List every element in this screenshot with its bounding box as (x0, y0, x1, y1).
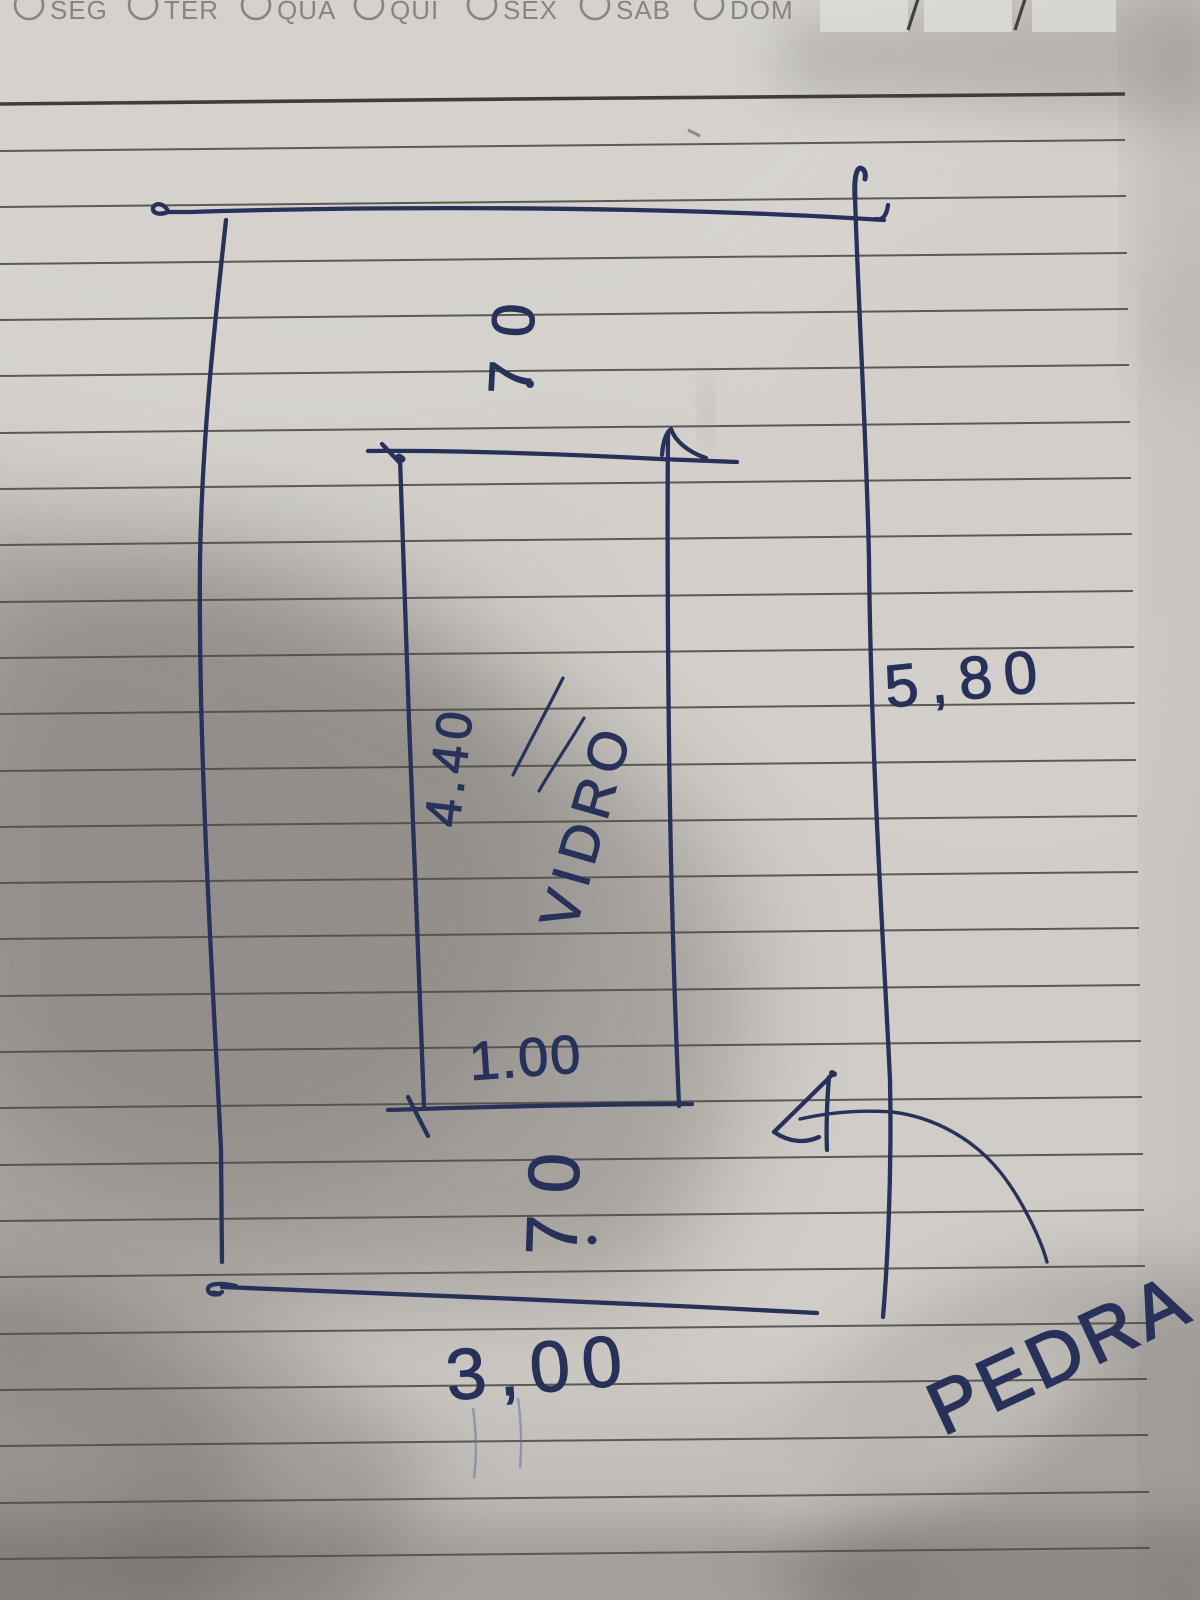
svg-text:DOM: DOM (730, 0, 794, 25)
svg-text:70: 70 (476, 278, 549, 396)
svg-text:QUA: QUA (277, 0, 336, 25)
svg-text:SEX: SEX (503, 0, 558, 25)
svg-text:SAB: SAB (616, 0, 671, 25)
svg-text:TER: TER (164, 0, 219, 25)
svg-text:QUI: QUI (390, 0, 439, 25)
svg-text:SEG: SEG (50, 0, 108, 25)
svg-text:70: 70 (512, 1130, 596, 1257)
svg-text:1.00: 1.00 (467, 1024, 584, 1092)
svg-text:3,00: 3,00 (443, 1320, 637, 1416)
